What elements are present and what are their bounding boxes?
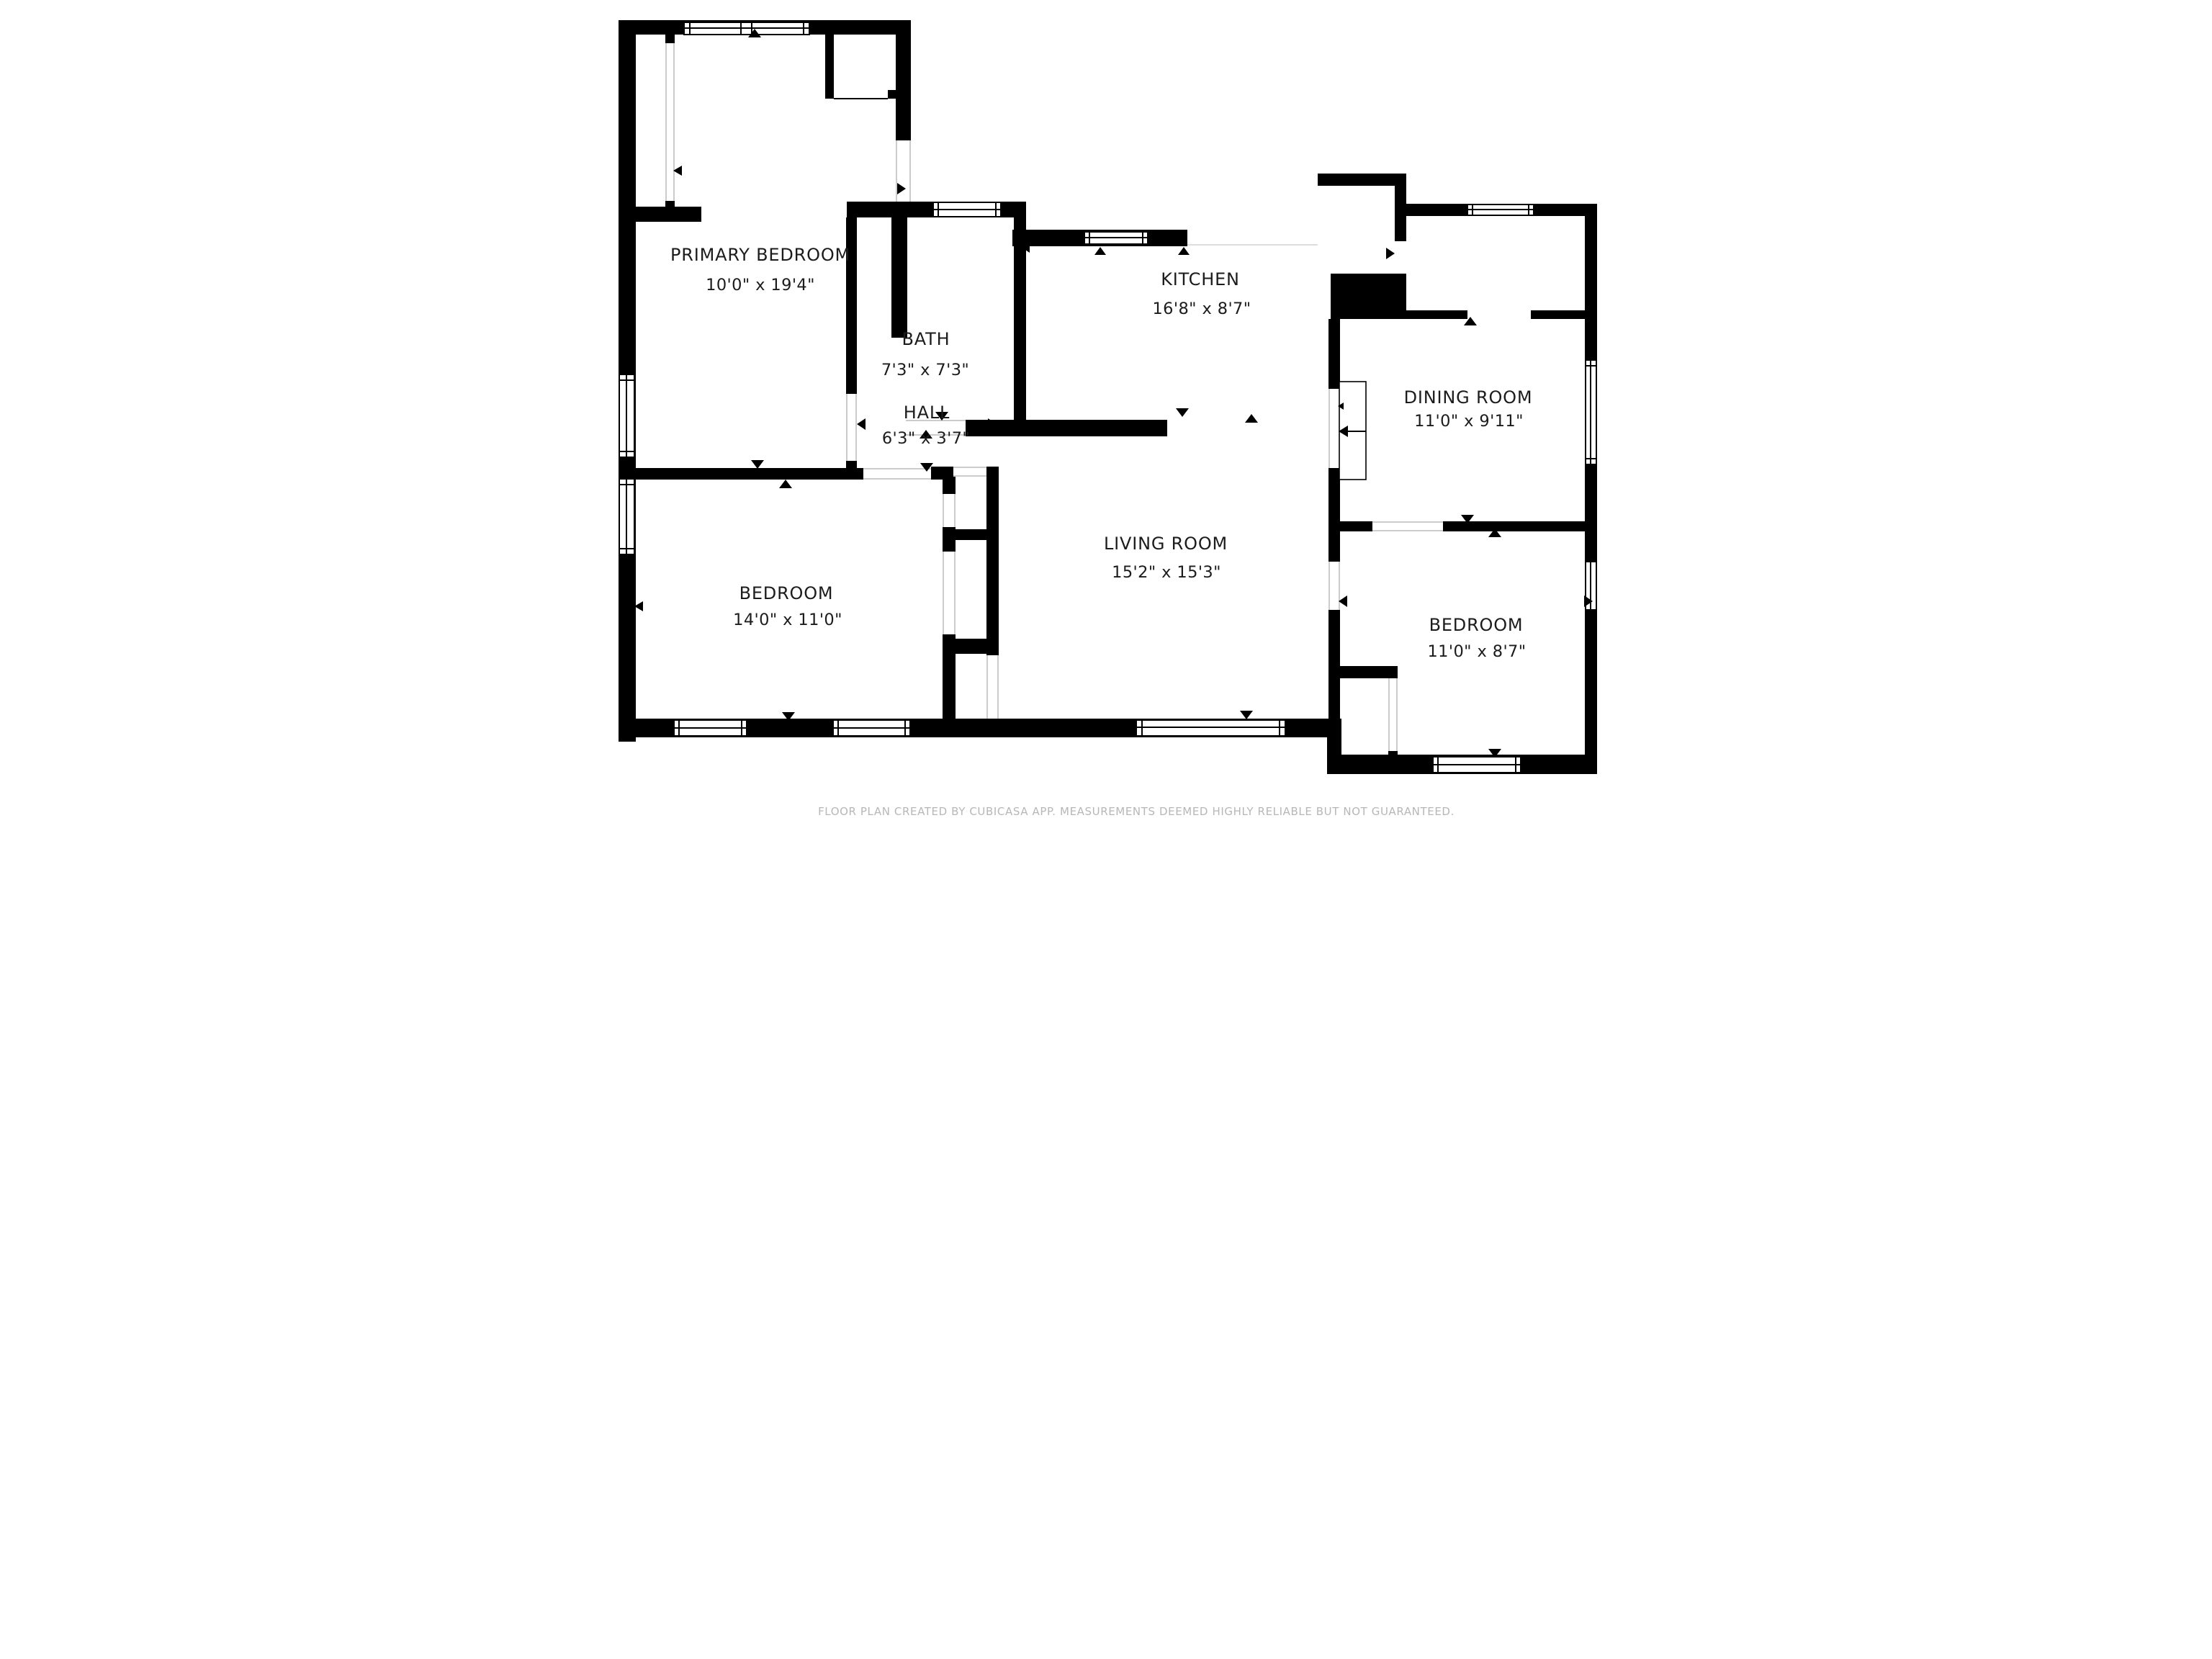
- door-bedroom-closet: [1388, 678, 1398, 751]
- room-dims-primary-bedroom: 10'0" x 19'4": [706, 276, 815, 295]
- room-dims-dining-room: 11'0" x 9'11": [1414, 412, 1524, 431]
- wall-dining-left-c: [1328, 610, 1340, 755]
- wall-closet-divider: [825, 35, 834, 91]
- arrow-right-kitchen-dining-icon: [1386, 248, 1395, 259]
- room-dims-bedroom-right: 11'0" x 8'7": [1427, 642, 1526, 661]
- window-living-slider: [1136, 720, 1285, 736]
- wall-bath-left: [891, 217, 907, 338]
- wall-primary-bedroom-divider: [619, 468, 863, 480]
- door-closet-2: [943, 552, 956, 634]
- wall-closet-foot-right: [888, 90, 896, 99]
- wall-closet-col-left-a: [943, 480, 956, 494]
- arrow-up-kitchen-window-icon: [1094, 247, 1106, 255]
- room-dims-hall: 6'3" x 3'7": [882, 429, 970, 448]
- wall-wardrobe-stub-top: [665, 32, 675, 43]
- window-dining-top: [1467, 204, 1534, 215]
- arrow-up-back-door-icon: [1178, 247, 1190, 255]
- door-dining-bedroom: [1372, 521, 1443, 531]
- arrow-up-divider-icon: [779, 480, 792, 488]
- window-bath: [933, 202, 1001, 217]
- wall-closet-col-divider1: [943, 529, 999, 540]
- wall-nook-bottom-left: [1406, 310, 1467, 319]
- room-label-hall: HALL: [904, 403, 950, 423]
- window-bedroom-left-1: [674, 720, 747, 736]
- window-primary-top: [684, 22, 809, 35]
- wall-bath-kitchen-bottom: [966, 420, 1167, 436]
- wall-divider-corner: [931, 467, 956, 480]
- door-openings: [665, 43, 1443, 751]
- room-dims-bedroom-left: 14'0" x 11'0": [733, 611, 842, 629]
- window-dining-right: [1586, 360, 1596, 464]
- wall-exterior-right: [1585, 204, 1597, 774]
- wall-dining-left-b: [1328, 468, 1340, 562]
- room-label-kitchen: KITCHEN: [1161, 269, 1240, 289]
- room-label-primary-bedroom: PRIMARY BEDROOM: [670, 245, 850, 265]
- door-wardrobe-slider: [665, 43, 675, 201]
- window-left-lower: [619, 479, 634, 554]
- arrow-down-living-slider-icon: [1240, 711, 1253, 719]
- window-left-upper: [619, 374, 634, 457]
- wall-closet-col-right: [986, 467, 999, 655]
- door-living-bedroom: [1328, 562, 1340, 610]
- arrow-left-primary-door-icon: [857, 418, 866, 430]
- arrow-down-kitchen-living-icon: [1176, 408, 1189, 417]
- arrow-up-kitchen-living-icon: [1245, 414, 1258, 423]
- floor-plan-svg: PRIMARY BEDROOM 10'0" x 19'4" BATH 7'3" …: [553, 0, 1659, 829]
- wall-primary-right-upper: [896, 35, 911, 140]
- arrow-down-divider-icon: [751, 460, 764, 469]
- wall-closet-col-divider2: [943, 639, 999, 654]
- wall-bedroom-closet-top: [1339, 666, 1398, 678]
- wall-primary-partition: [629, 207, 701, 222]
- room-dims-bath: 7'3" x 7'3": [881, 361, 969, 379]
- opening-living-dining: [1328, 389, 1340, 468]
- footer-disclaimer: FLOOR PLAN CREATED BY CUBICASA APP. MEAS…: [818, 805, 1455, 818]
- wall-kitchen-dining-mass: [1331, 274, 1406, 319]
- wall-kitchen-dining-divider: [1395, 186, 1406, 241]
- wall-step-top: [1318, 174, 1406, 186]
- wall-bedroom-closet-cap: [1388, 751, 1398, 755]
- room-label-bedroom-right: BEDROOM: [1429, 615, 1524, 635]
- door-hall-closet: [953, 467, 986, 477]
- door-primary-bedroom: [846, 394, 857, 461]
- door-closet-living: [986, 655, 999, 719]
- room-label-bath: BATH: [902, 329, 950, 349]
- room-label-living-room: LIVING ROOM: [1104, 534, 1228, 554]
- wall-closet-foot-left: [825, 90, 834, 99]
- window-bedroom-right-bottom: [1433, 757, 1521, 773]
- wall-dining-bedroom-divider-b: [1443, 521, 1585, 531]
- room-label-dining-room: DINING ROOM: [1404, 387, 1533, 408]
- window-kitchen: [1084, 232, 1148, 244]
- wall-dining-bedroom-divider-a: [1328, 521, 1372, 531]
- floor-plan-page: PRIMARY BEDROOM 10'0" x 19'4" BATH 7'3" …: [553, 0, 1659, 829]
- wall-primary-right-lower: [846, 217, 857, 394]
- wall-nook-bottom-right: [1531, 310, 1585, 319]
- room-dims-living-room: 15'2" x 15'3": [1112, 563, 1221, 582]
- door-closet-1: [943, 494, 956, 527]
- window-bedroom-left-2: [833, 720, 910, 736]
- room-dims-kitchen: 16'8" x 8'7": [1152, 300, 1251, 318]
- door-hall-bedroom: [863, 468, 931, 480]
- room-label-bedroom-left: BEDROOM: [739, 583, 834, 603]
- wall-dining-left-a: [1328, 319, 1340, 389]
